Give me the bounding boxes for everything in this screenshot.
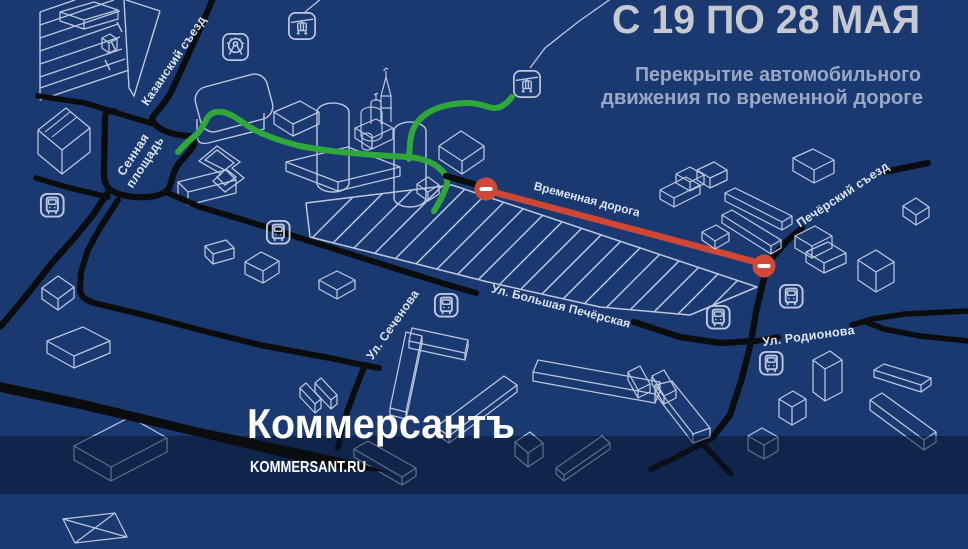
svg-text:движения по временной дороге: движения по временной дороге — [601, 87, 923, 109]
svg-text:С 19 ПО 28 МАЯ: С 19 ПО 28 МАЯ — [612, 0, 920, 42]
svg-text:Коммерсантъ: Коммерсантъ — [247, 400, 515, 447]
svg-text:KOMMERSANT.RU: KOMMERSANT.RU — [250, 459, 366, 476]
svg-text:Перекрытие автомобильного: Перекрытие автомобильного — [635, 64, 921, 86]
